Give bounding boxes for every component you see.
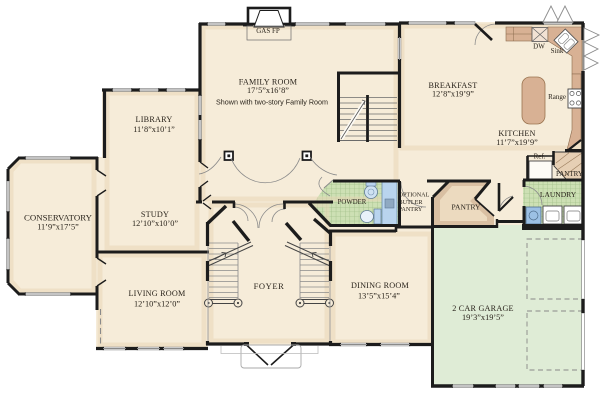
svg-text:13’5”x15’4”: 13’5”x15’4” (358, 292, 400, 301)
svg-text:Shown with two-story Family Ro: Shown with two-story Family Room (216, 98, 328, 107)
svg-text:2 CAR GARAGE: 2 CAR GARAGE (452, 304, 514, 313)
svg-text:PANTRY: PANTRY (399, 206, 423, 213)
svg-text:KITCHEN: KITCHEN (498, 129, 535, 138)
svg-text:CONSERVATORY: CONSERVATORY (24, 213, 93, 223)
svg-text:DW: DW (533, 43, 545, 51)
svg-text:FOYER: FOYER (254, 281, 285, 291)
svg-text:LIVING ROOM: LIVING ROOM (128, 289, 186, 298)
svg-text:17’5”x16’8”: 17’5”x16’8” (247, 86, 289, 95)
svg-text:11’8”x10’1”: 11’8”x10’1” (133, 125, 175, 134)
svg-text:12’10”x12’0”: 12’10”x12’0” (134, 300, 180, 309)
svg-text:STUDY: STUDY (141, 210, 169, 219)
svg-text:LAUNDRY: LAUNDRY (540, 190, 577, 199)
svg-text:11’7”x19’9”: 11’7”x19’9” (496, 138, 538, 147)
svg-text:12’10”x10’0”: 12’10”x10’0” (132, 219, 178, 228)
svg-text:BUTLER: BUTLER (399, 199, 424, 206)
svg-text:Sink: Sink (551, 47, 564, 55)
svg-text:12’8”x19’9”: 12’8”x19’9” (432, 90, 474, 99)
svg-text:POWDER: POWDER (338, 199, 367, 206)
svg-text:LIBRARY: LIBRARY (136, 115, 173, 124)
svg-text:Range: Range (548, 93, 566, 101)
svg-text:PANTRY: PANTRY (452, 203, 481, 212)
svg-text:PANTRY: PANTRY (556, 170, 583, 178)
svg-text:OPTIONAL: OPTIONAL (399, 192, 430, 199)
svg-text:Ref.: Ref. (534, 153, 546, 161)
svg-text:GAS FP: GAS FP (256, 27, 280, 35)
svg-text:19’3”x19’5”: 19’3”x19’5” (462, 313, 504, 322)
svg-text:11’9”x17’5”: 11’9”x17’5” (37, 223, 79, 232)
svg-text:DINING ROOM: DINING ROOM (351, 281, 409, 290)
